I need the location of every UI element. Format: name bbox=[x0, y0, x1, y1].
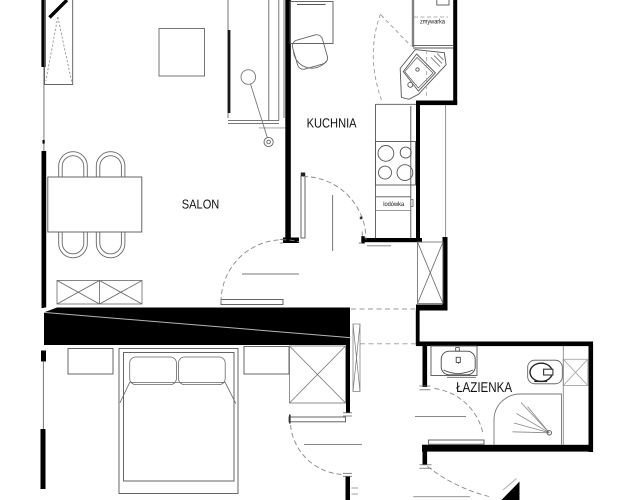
svg-text:SALON: SALON bbox=[182, 196, 220, 211]
svg-text:ŁAZIENKA: ŁAZIENKA bbox=[456, 380, 512, 396]
svg-text:KUCHNIA: KUCHNIA bbox=[307, 116, 357, 131]
svg-text:lodówka: lodówka bbox=[383, 201, 404, 208]
svg-text:zmywarka: zmywarka bbox=[420, 18, 445, 25]
